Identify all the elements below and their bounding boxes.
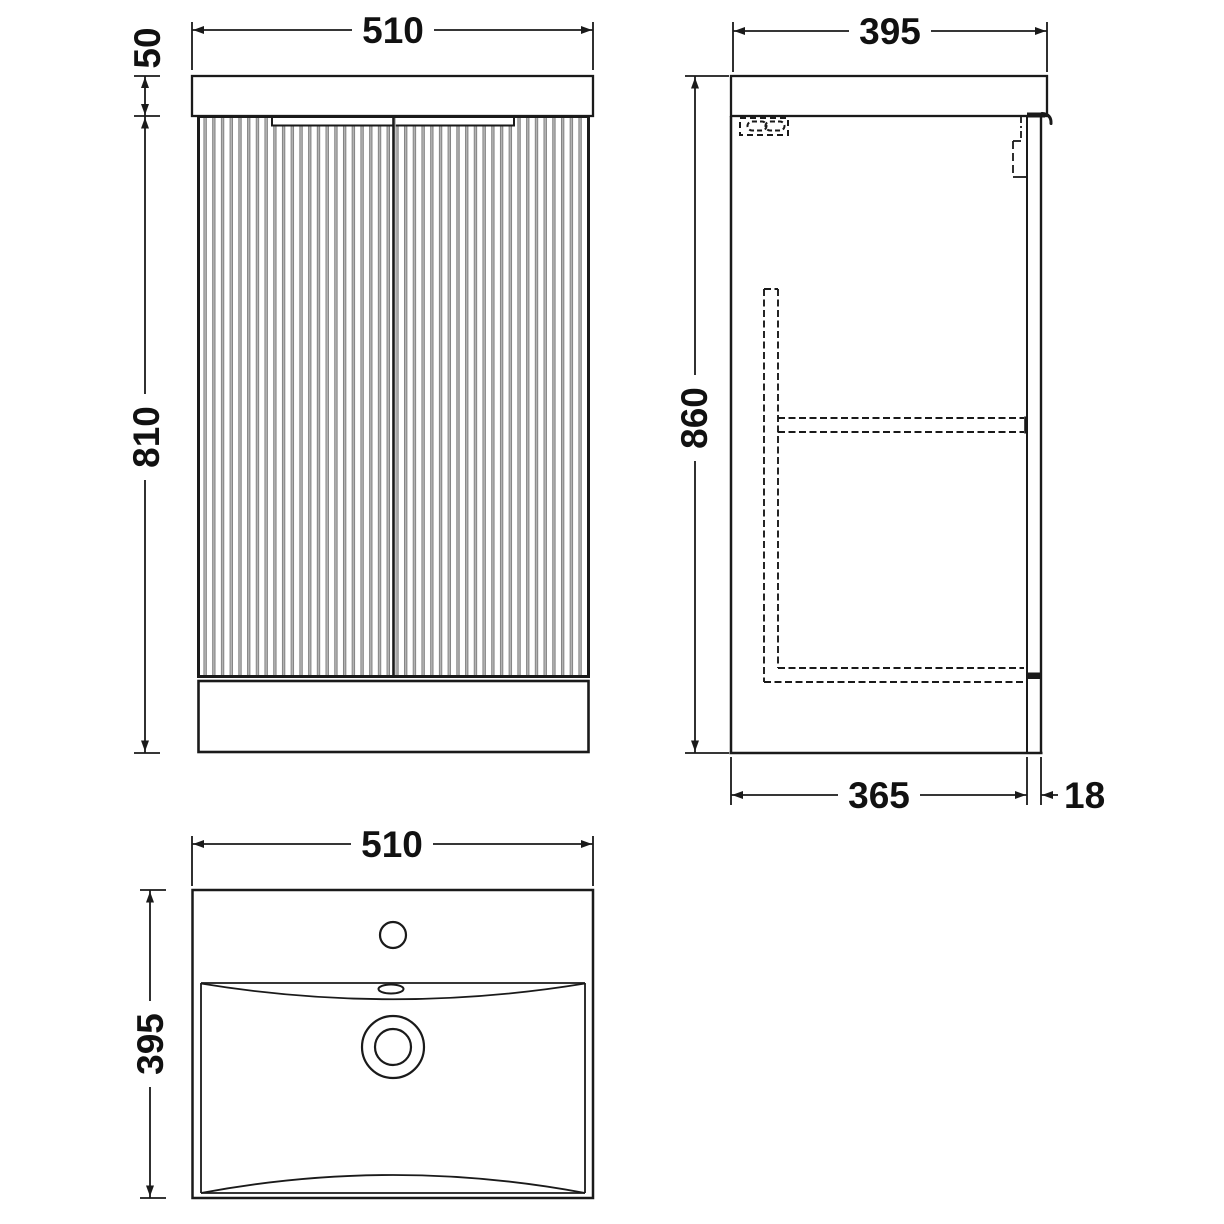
dim-label-side-depth: 395 <box>859 11 921 52</box>
bottom-shelf-dashed <box>764 668 1041 682</box>
front-plinth <box>199 681 589 752</box>
door-left-fluting <box>200 118 393 676</box>
dim-label-side-door-thickness: 18 <box>1064 775 1105 816</box>
wall-bracket-detail <box>740 118 788 135</box>
dim-label-plan-width: 510 <box>361 824 423 865</box>
vanity-drawing: 510 50 810 <box>0 0 1224 1224</box>
front-height-dimensions: 50 810 <box>126 27 168 753</box>
side-view: 395 860 <box>674 11 1105 816</box>
overflow-slot <box>379 985 404 994</box>
plan-view: 510 395 <box>130 824 593 1198</box>
worktop-drip-edge <box>1042 114 1051 124</box>
front-view: 510 50 810 <box>126 10 593 753</box>
side-height-dimension: 860 <box>674 76 729 753</box>
dim-label-front-cabinet: 810 <box>126 406 167 468</box>
dim-label-front-width: 510 <box>362 10 424 51</box>
front-worktop <box>192 76 593 116</box>
dim-label-side-height: 860 <box>674 387 715 449</box>
side-depth-dimension: 395 <box>733 11 1047 72</box>
dim-label-plan-depth: 395 <box>130 1013 171 1075</box>
front-doors <box>199 117 589 677</box>
shelf-door-joint <box>1027 673 1041 680</box>
dim-label-front-worktop: 50 <box>127 27 168 68</box>
handle-recess-right <box>396 118 514 126</box>
side-worktop <box>731 76 1047 116</box>
technical-drawing-canvas: 510 50 810 <box>0 0 1224 1224</box>
door-right-fluting <box>396 118 588 676</box>
handle-recess-left <box>272 118 392 126</box>
hinge-detail <box>1013 116 1027 177</box>
waste-channel-dashed <box>764 289 778 682</box>
middle-shelf-dashed <box>778 417 1026 434</box>
side-bottom-dimensions: 365 18 <box>731 757 1105 816</box>
tap-hole <box>380 922 406 948</box>
dim-label-side-cabinet-depth: 365 <box>848 775 910 816</box>
plan-depth-dimension: 395 <box>130 890 171 1198</box>
front-width-dimension: 510 <box>192 10 593 70</box>
plan-width-dimension: 510 <box>192 824 593 886</box>
